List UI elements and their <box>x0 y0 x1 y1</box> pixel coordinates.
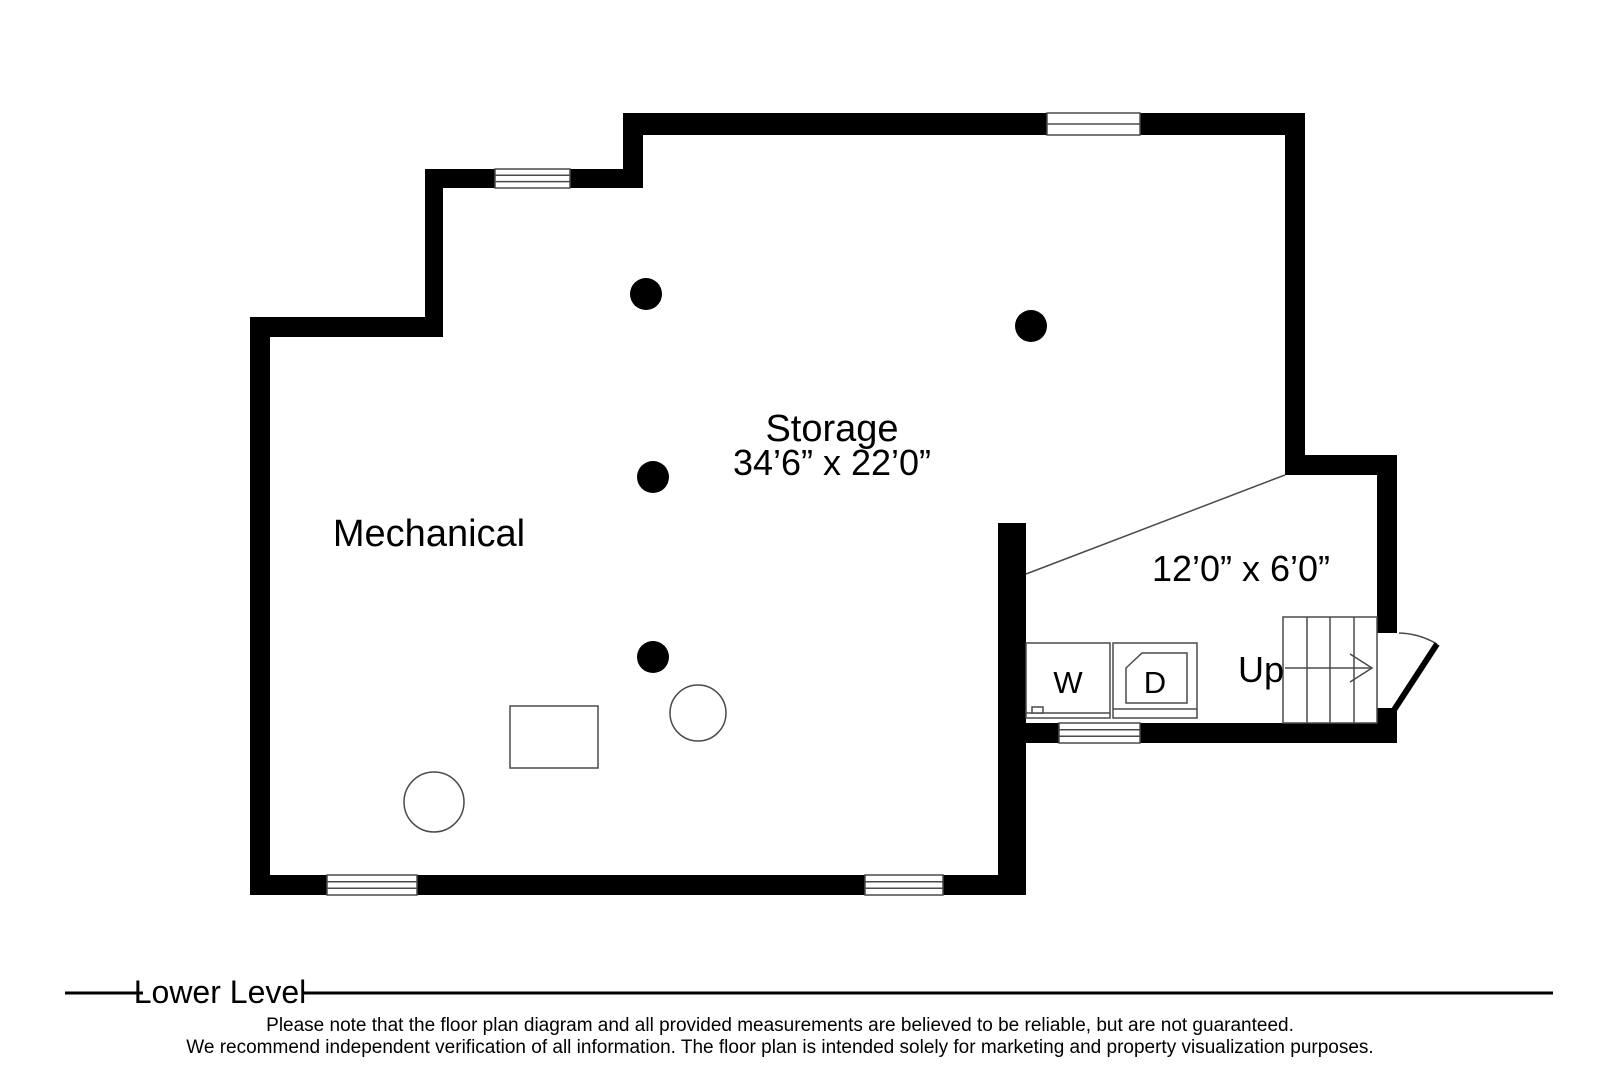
washer-label: W <box>1053 665 1083 700</box>
column-top <box>630 278 662 310</box>
laundry-room-dimensions: 12’0” x 6’0” <box>1152 548 1330 589</box>
wall-divider-vertical <box>998 523 1026 895</box>
footer: Lower Level Please note that the floor p… <box>65 974 1553 1058</box>
wall-top-upper <box>623 113 1305 135</box>
disclaimer-line-2: We recommend independent verification of… <box>186 1037 1373 1058</box>
window-top-wall <box>1047 113 1140 135</box>
staircase <box>1283 617 1377 723</box>
window-bottom-wall-left <box>327 875 417 895</box>
wall-right-upper-vertical <box>1285 113 1305 475</box>
washer-detail-knob <box>1032 707 1043 713</box>
window-bottom-wall-right <box>865 875 943 895</box>
equipment-tank-right <box>670 685 726 741</box>
wall-left-step-horizontal <box>250 317 443 337</box>
mechanical-room-label: Mechanical <box>333 513 525 555</box>
equipment-rectangle <box>510 706 598 768</box>
wall-right-laundry-upper <box>1377 455 1397 633</box>
storage-room-dimensions: 34’6” x 22’0” <box>733 442 931 483</box>
wall-bottom-laundry <box>998 723 1397 743</box>
window-laundry-bottom-wall <box>1059 723 1140 743</box>
window-upper-left-wall <box>495 169 570 188</box>
column-right <box>1015 310 1047 342</box>
dryer-label: D <box>1144 665 1166 700</box>
equipment-tank-left <box>404 772 464 832</box>
stairs-up-label: Up <box>1238 649 1284 690</box>
column-bottom <box>637 641 669 673</box>
level-label: Lower Level <box>134 974 307 1010</box>
floor-plan-page: Storage 34’6” x 22’0” Mechanical 12’0” x… <box>0 0 1620 1080</box>
disclaimer-line-1: Please note that the floor plan diagram … <box>266 1015 1294 1036</box>
wall-left-upper-vertical <box>425 169 443 337</box>
column-middle <box>637 461 669 493</box>
floor-plan-canvas: Storage 34’6” x 22’0” Mechanical 12’0” x… <box>0 0 1620 1080</box>
wall-left-main-vertical <box>250 317 270 895</box>
door-swing-arc <box>1399 633 1437 644</box>
door-leaf <box>1394 644 1437 710</box>
